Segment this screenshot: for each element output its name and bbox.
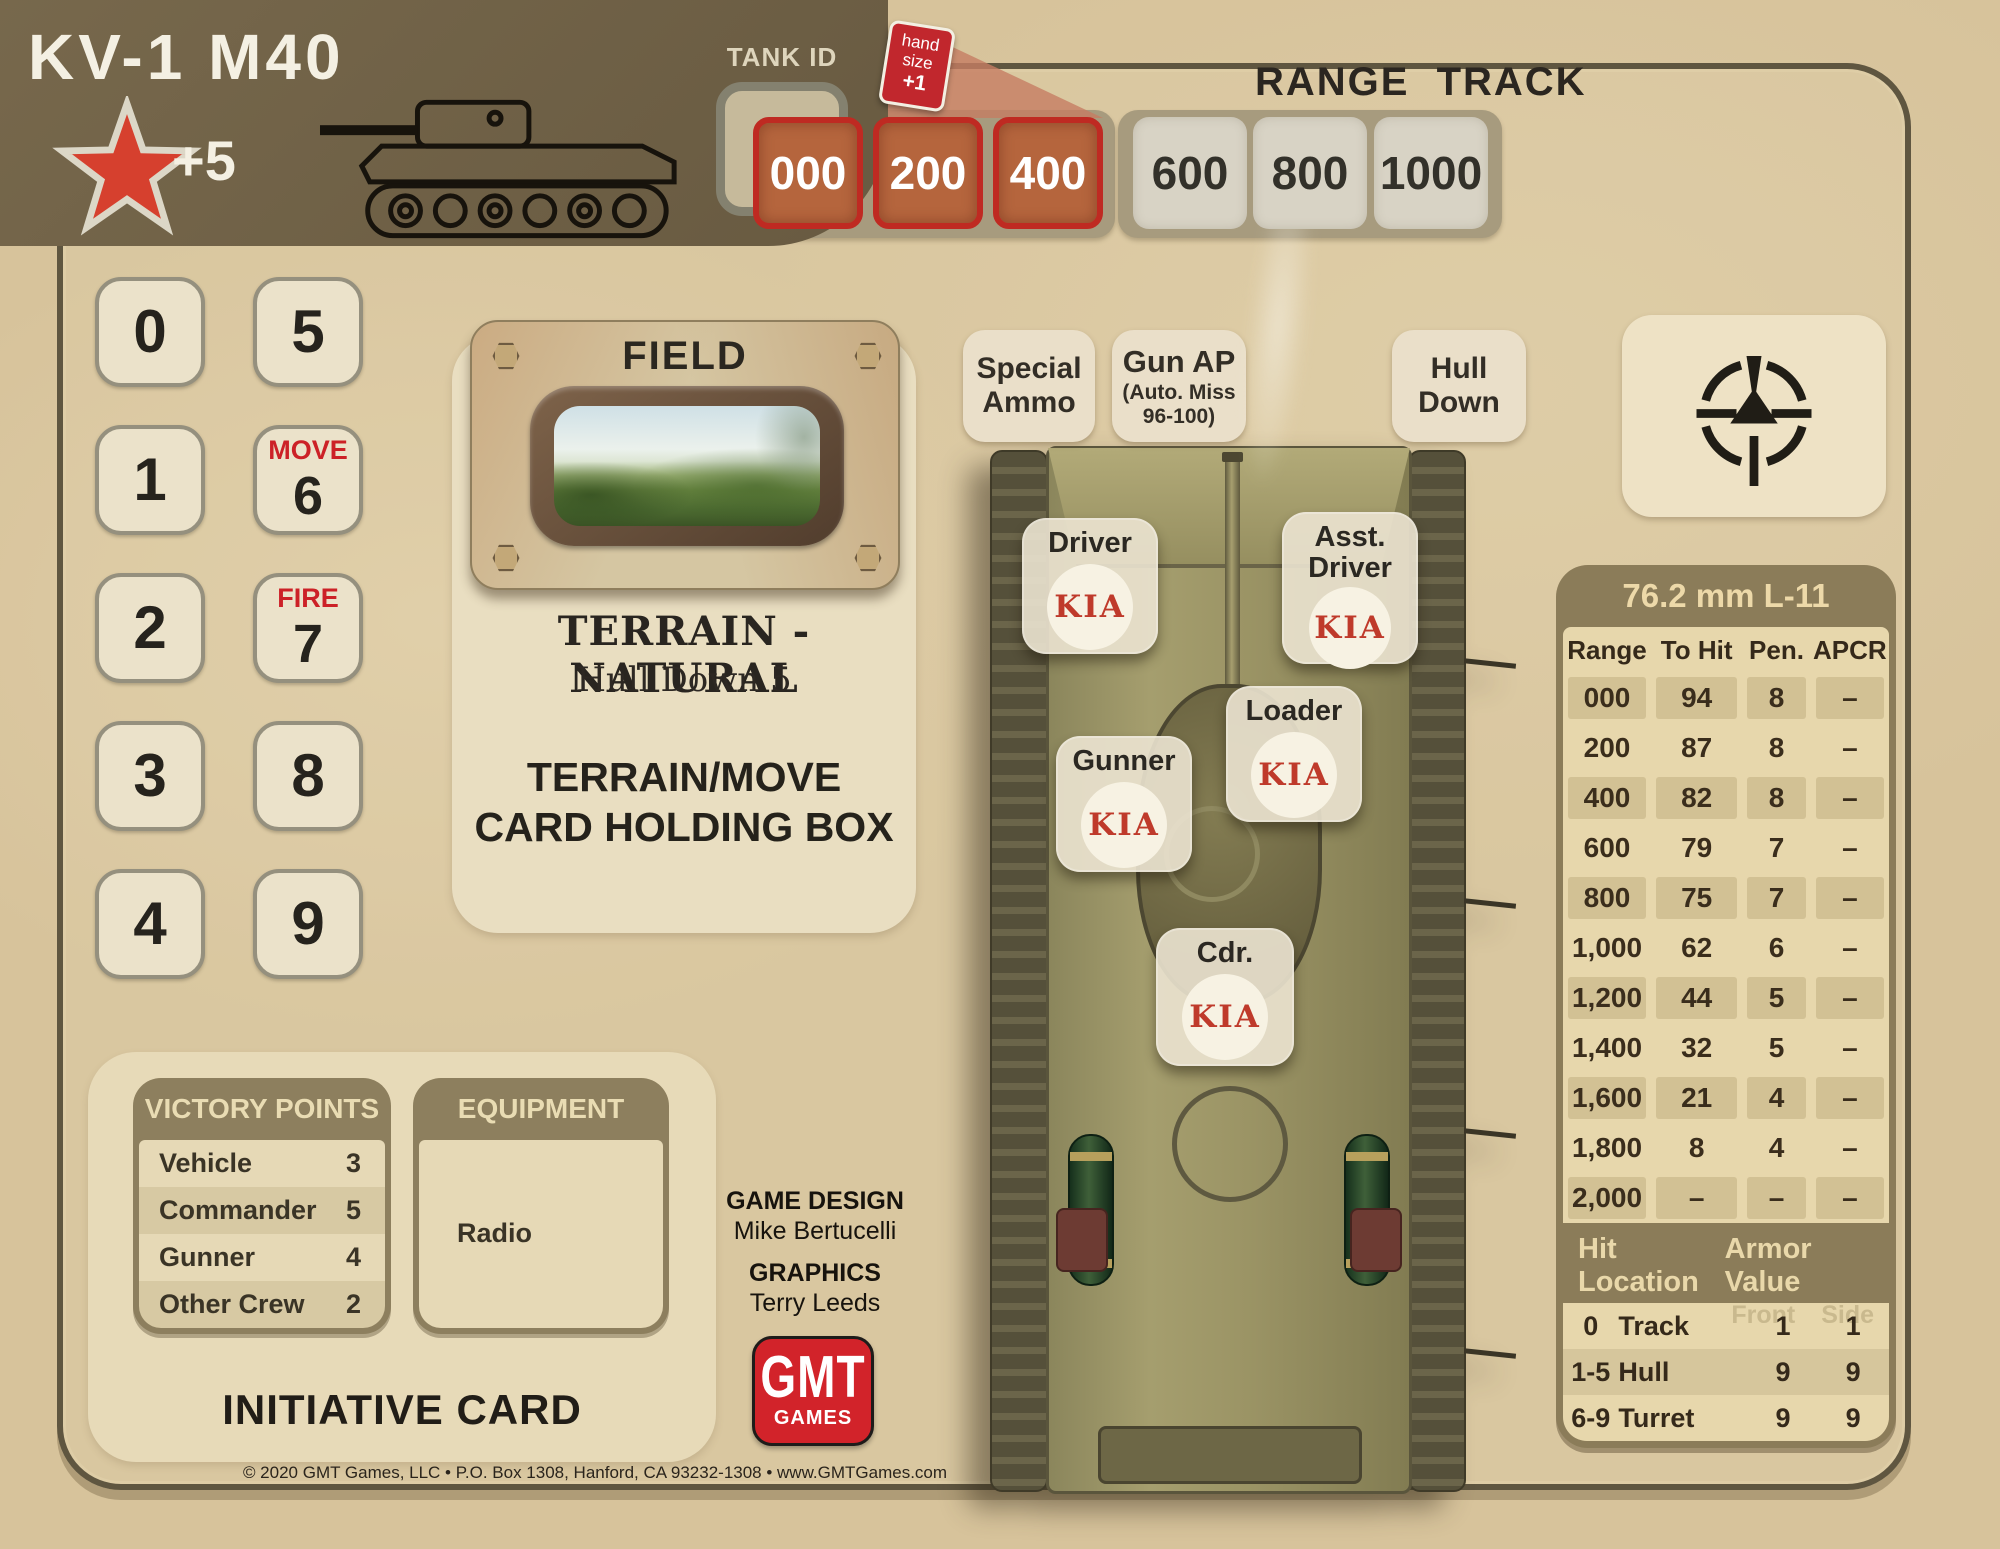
range-box-200[interactable]: 200	[873, 117, 983, 229]
design-label: GAME DESIGN	[722, 1186, 908, 1216]
star-bonus: +5	[172, 128, 236, 193]
number-box-4[interactable]: 4	[95, 869, 205, 979]
kia-marker[interactable]: KIA	[1081, 782, 1167, 868]
number-box-1[interactable]: 1	[95, 425, 205, 535]
equipment-body: Radio	[419, 1140, 663, 1328]
range-box-800[interactable]: 800	[1253, 117, 1367, 229]
gun-table-row: 1,200445–	[1563, 973, 1889, 1023]
designer-name: Mike Bertucelli	[722, 1216, 908, 1246]
gun-ap-box[interactable]: Gun AP (Auto. Miss 96-100)	[1112, 330, 1246, 442]
stowage-right	[1350, 1208, 1402, 1272]
tank-gun-barrel	[1225, 454, 1240, 704]
gun-table-row: 600797–	[1563, 823, 1889, 873]
gun-table-row: 1,600214–	[1563, 1073, 1889, 1123]
terrain-card-title: FIELD	[472, 334, 898, 379]
vision-port-frame	[530, 386, 844, 546]
vp-row: Other Crew2	[139, 1281, 385, 1328]
gunsight-panel	[1622, 315, 1886, 517]
gun-table-row: 2,000–––	[1563, 1173, 1889, 1223]
gun-table-row: 200878–	[1563, 723, 1889, 773]
kia-marker[interactable]: KIA	[1251, 732, 1337, 818]
number-box-9[interactable]: 9	[253, 869, 363, 979]
gun-ap-note: (Auto. Miss 96-100)	[1112, 381, 1246, 428]
equipment-title: EQUIPMENT	[419, 1078, 663, 1140]
number-box-3[interactable]: 3	[95, 721, 205, 831]
gun-name: 76.2 mm L-11	[1563, 565, 1889, 627]
number-box-7-fire[interactable]: FIRE 7	[253, 573, 363, 683]
terrain-modifier: Hull Down 5	[452, 660, 916, 700]
range-box-000[interactable]: 000	[753, 117, 863, 229]
gun-table-row: 800757–	[1563, 873, 1889, 923]
hit-location-row: 0Track11	[1563, 1303, 1889, 1349]
hit-location-row: 6-9Turret99	[1563, 1395, 1889, 1441]
holding-box-label: TERRAIN/MOVE CARD HOLDING BOX	[462, 752, 906, 852]
crew-box-driver[interactable]: Driver KIA	[1022, 518, 1158, 654]
credits-block: GAME DESIGN Mike Bertucelli GRAPHICS Ter…	[722, 1186, 908, 1330]
stowage-left	[1056, 1208, 1108, 1272]
gunsight-reticle-icon	[1679, 341, 1829, 491]
crew-box-loader[interactable]: Loader KIA	[1226, 686, 1362, 822]
gun-data-panel: 76.2 mm L-11 Range To Hit Pen. APCR 0009…	[1556, 565, 1896, 1448]
number-box-5[interactable]: 5	[253, 277, 363, 387]
initiative-card-label: INITIATIVE CARD	[88, 1386, 716, 1434]
terrain-card[interactable]: FIELD	[470, 320, 900, 590]
engine-hatch	[1172, 1086, 1288, 1202]
player-aid-board: KV-1 M40 +5 TANK ID RANGE TRACK hand siz…	[0, 0, 2000, 1549]
hit-location-row: 1-5Hull99	[1563, 1349, 1889, 1395]
vp-row: Gunner4	[139, 1234, 385, 1281]
number-box-2[interactable]: 2	[95, 573, 205, 683]
copyright-line: © 2020 GMT Games, LLC • P.O. Box 1308, H…	[190, 1463, 1000, 1483]
gun-table-row: 1,400325–	[1563, 1023, 1889, 1073]
range-box-600[interactable]: 600	[1133, 117, 1247, 229]
number-box-0[interactable]: 0	[95, 277, 205, 387]
move-label: MOVE	[268, 437, 348, 464]
vp-row: Vehicle3	[139, 1140, 385, 1187]
bolt-icon	[854, 544, 882, 572]
rear-plate	[1098, 1426, 1362, 1484]
tank-silhouette-icon	[318, 78, 696, 243]
gun-table-row: 000948–	[1563, 673, 1889, 723]
range-box-400[interactable]: 400	[993, 117, 1103, 229]
number-box-8[interactable]: 8	[253, 721, 363, 831]
range-track-title: RANGE TRACK	[1255, 60, 1587, 105]
kia-marker[interactable]: KIA	[1182, 974, 1268, 1060]
field-landscape-image	[554, 406, 820, 526]
crew-box-asst-driver[interactable]: Asst. Driver KIA	[1282, 512, 1418, 664]
victory-points-panel: VICTORY POINTS Vehicle3 Commander5 Gunne…	[133, 1078, 391, 1334]
gun-table-row: 400828–	[1563, 773, 1889, 823]
hit-location-header: Hit Location Armor Value Front Side	[1556, 1223, 1896, 1303]
vp-row: Commander5	[139, 1187, 385, 1234]
artist-name: Terry Leeds	[722, 1288, 908, 1318]
gmt-games-logo: GMT GAMES	[752, 1336, 874, 1446]
crew-box-gunner[interactable]: Gunner KIA	[1056, 736, 1192, 872]
tank-id-label: TANK ID	[716, 42, 848, 73]
gun-table-row: 1,80084–	[1563, 1123, 1889, 1173]
number-box-6-move[interactable]: MOVE 6	[253, 425, 363, 535]
tank-title: KV-1 M40	[28, 20, 345, 94]
bolt-icon	[492, 544, 520, 572]
kia-marker[interactable]: KIA	[1309, 587, 1391, 669]
crew-box-commander[interactable]: Cdr. KIA	[1156, 928, 1294, 1066]
hull-down-box[interactable]: Hull Down	[1392, 330, 1526, 442]
special-ammo-box[interactable]: Special Ammo	[963, 330, 1095, 442]
kia-marker[interactable]: KIA	[1047, 564, 1133, 650]
fire-label: FIRE	[277, 585, 339, 612]
victory-points-title: VICTORY POINTS	[139, 1078, 385, 1140]
gun-table-header: Range To Hit Pen. APCR	[1563, 627, 1889, 673]
range-box-1000[interactable]: 1000	[1374, 117, 1488, 229]
graphics-label: GRAPHICS	[722, 1258, 908, 1288]
gun-table-row: 1,000626–	[1563, 923, 1889, 973]
hand-size-badge: hand size +1	[878, 19, 956, 112]
equipment-item: Radio	[419, 1140, 663, 1249]
equipment-panel: EQUIPMENT Radio	[413, 1078, 669, 1334]
